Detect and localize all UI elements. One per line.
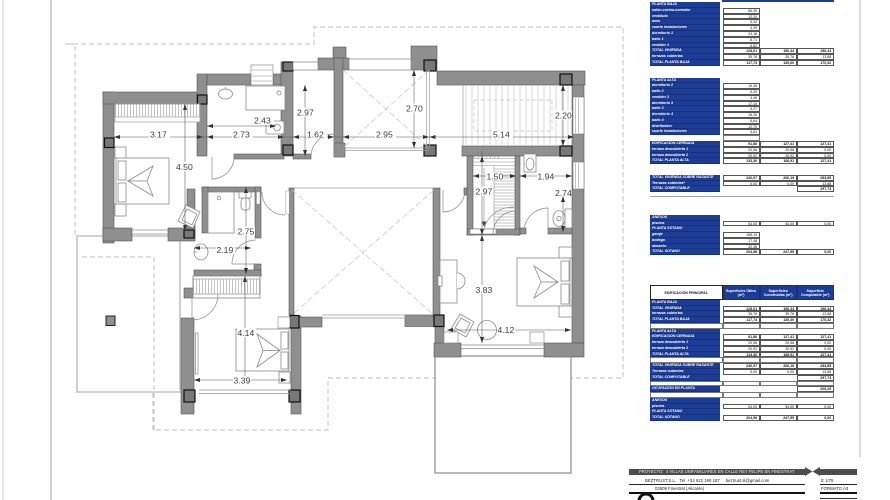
svg-text:3.39: 3.39 [234,376,251,386]
svg-text:2.95: 2.95 [376,130,393,140]
svg-text:2.75: 2.75 [238,227,255,237]
svg-text:4.12: 4.12 [498,325,515,335]
svg-text:2.70: 2.70 [406,104,423,114]
svg-text:4.14: 4.14 [238,328,255,338]
svg-text:3.17: 3.17 [150,130,167,140]
svg-text:1.50: 1.50 [487,172,504,182]
svg-text:2.97: 2.97 [297,108,314,118]
svg-text:2.20: 2.20 [555,111,572,121]
svg-text:2.43: 2.43 [254,116,271,126]
svg-text:1.94: 1.94 [538,172,555,182]
svg-text:2.19: 2.19 [217,245,234,255]
svg-text:2.74: 2.74 [555,188,572,198]
svg-text:4.50: 4.50 [176,162,193,172]
svg-text:2.97: 2.97 [476,187,493,197]
svg-text:5.14: 5.14 [493,130,510,140]
svg-text:1.62: 1.62 [307,130,324,140]
svg-text:3.83: 3.83 [476,285,493,295]
svg-text:2.73: 2.73 [233,130,250,140]
